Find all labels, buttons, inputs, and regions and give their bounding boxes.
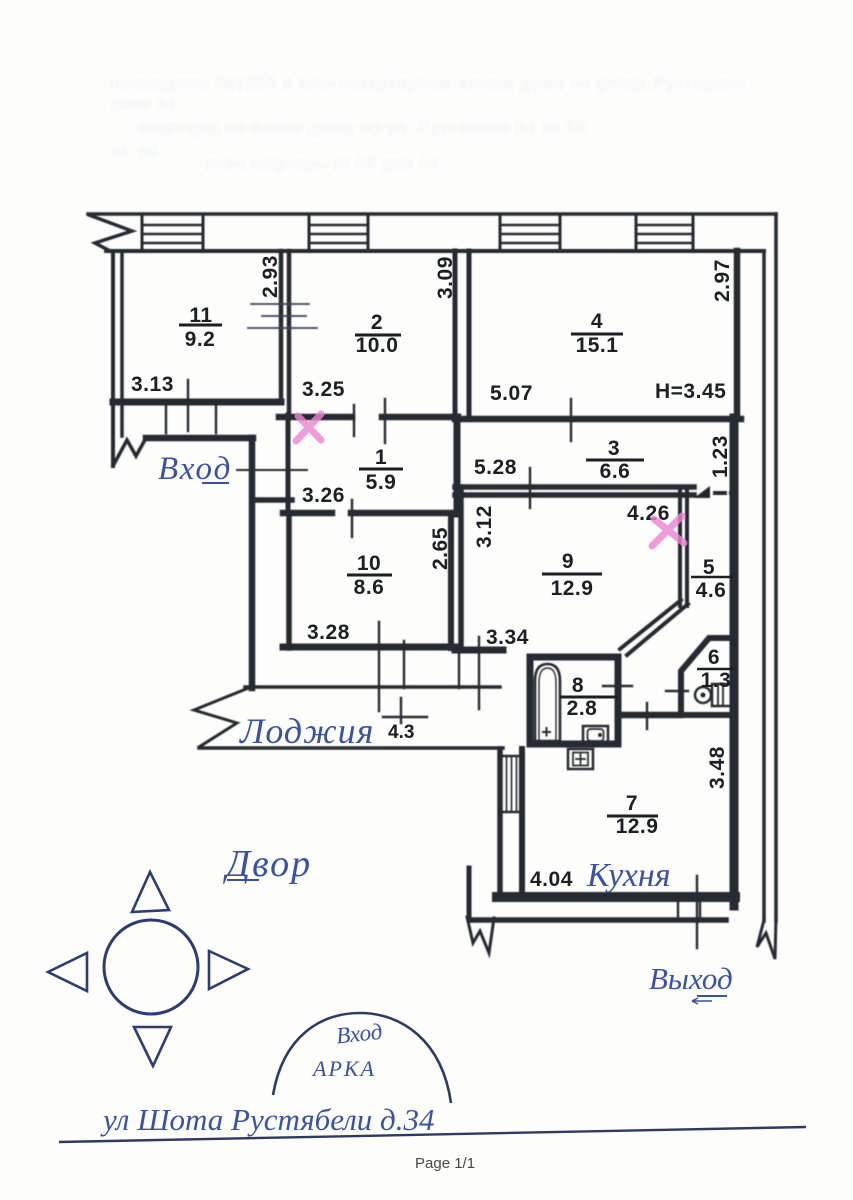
svg-text:12.9: 12.9 [616,815,659,838]
svg-text:3.13: 3.13 [131,373,174,396]
svg-text:ул Шота Рустябели д.34: ул Шота Рустябели д.34 [100,1102,434,1137]
svg-text:8: 8 [572,674,584,697]
svg-text:1.23: 1.23 [709,435,732,478]
svg-text:Выход: Выход [649,961,733,996]
svg-text:2.93: 2.93 [259,255,282,298]
svg-text:2.8: 2.8 [567,697,598,720]
svg-text:Page 1/1: Page 1/1 [415,1155,475,1172]
svg-text:8.6: 8.6 [354,576,385,599]
svg-text:Вход: Вход [335,1019,384,1049]
svg-text:5.07: 5.07 [490,382,533,405]
svg-text:3.25: 3.25 [302,378,345,401]
svg-text:4.26: 4.26 [627,502,670,525]
svg-text:2.65: 2.65 [429,527,452,570]
svg-text:3.34: 3.34 [486,626,529,649]
svg-text:4.3: 4.3 [388,722,414,743]
svg-text:3: 3 [608,437,620,460]
svg-text:Вход: Вход [158,451,232,487]
svg-text:3.12: 3.12 [473,505,496,548]
svg-text:5: 5 [703,556,715,579]
svg-text:4: 4 [591,310,603,333]
svg-text:6.6: 6.6 [600,460,631,483]
svg-text:2: 2 [371,311,383,334]
svg-text:1: 1 [375,446,387,469]
svg-text:12.9: 12.9 [551,577,594,600]
svg-text:10.0: 10.0 [356,334,399,357]
svg-text:3.26: 3.26 [302,484,345,507]
svg-text:5.9: 5.9 [366,471,397,494]
svg-text:3.28: 3.28 [307,621,350,644]
svg-text:2.97: 2.97 [711,259,734,302]
svg-text:Кухня: Кухня [586,857,671,894]
svg-text:3.48: 3.48 [706,746,729,789]
svg-text:АРКА: АРКА [311,1056,376,1081]
svg-text:4.04: 4.04 [530,868,573,891]
svg-text:4.6: 4.6 [696,579,727,602]
svg-text:9.2: 9.2 [185,328,216,351]
svg-text:9: 9 [562,550,574,573]
svg-text:3.09: 3.09 [434,256,457,299]
svg-text:Лоджия: Лоджия [239,711,374,751]
svg-text:5.28: 5.28 [474,456,517,479]
svg-text:6: 6 [708,646,720,669]
svg-text:7: 7 [626,792,638,815]
svg-text:15.1: 15.1 [576,334,619,357]
svg-text:H=3.45: H=3.45 [655,380,726,403]
svg-text:10: 10 [357,552,381,575]
svg-text:Двор: Двор [223,843,312,885]
svg-text:1.3: 1.3 [701,669,732,692]
